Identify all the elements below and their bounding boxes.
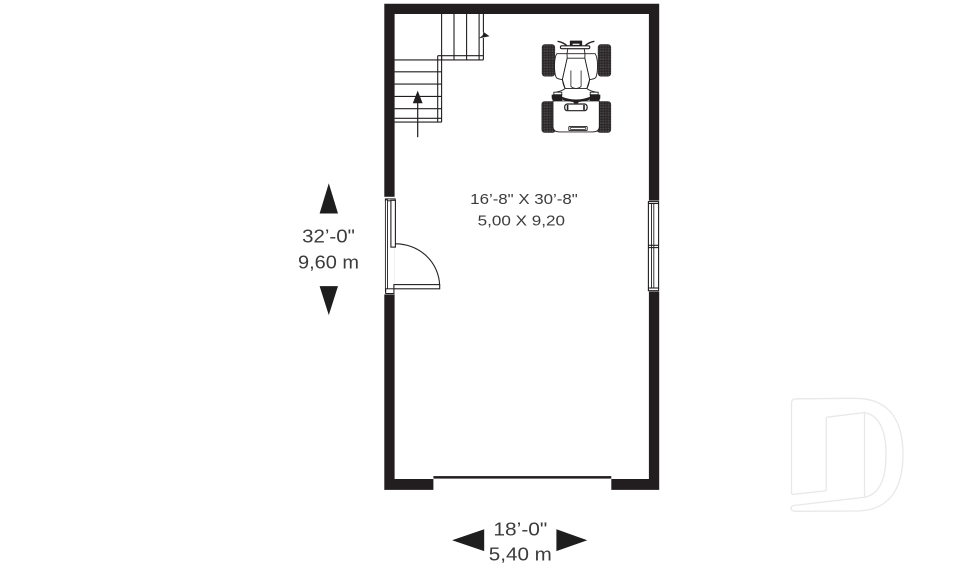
svg-text:9,60 m: 9,60 m xyxy=(298,252,359,273)
svg-text:16’-8" X 30’-8": 16’-8" X 30’-8" xyxy=(470,191,578,208)
svg-text:18’-0": 18’-0" xyxy=(493,519,547,540)
svg-text:32’-0": 32’-0" xyxy=(302,226,355,247)
svg-text:5,40 m: 5,40 m xyxy=(489,544,552,565)
svg-text:5,00 X 9,20: 5,00 X 9,20 xyxy=(478,212,565,229)
